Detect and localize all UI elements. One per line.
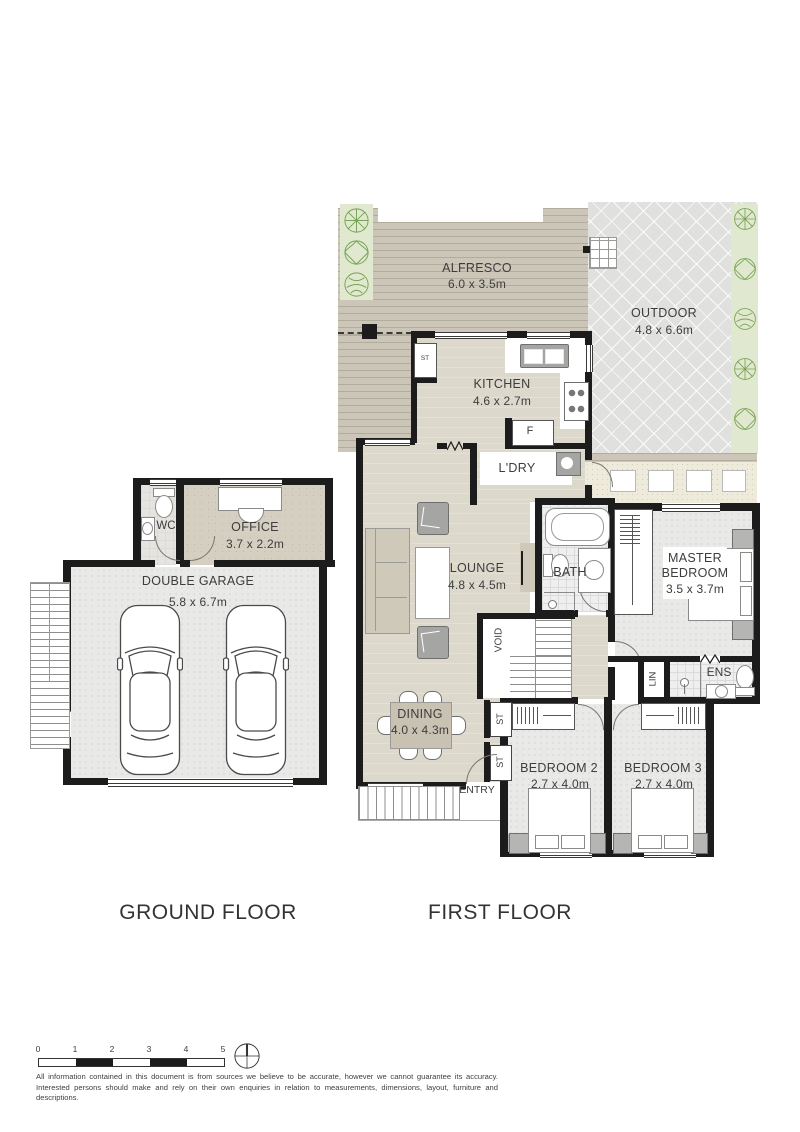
room-label-laundry: L'DRY <box>498 461 535 475</box>
room-label-pantry: ST <box>421 355 429 362</box>
kitchen-window <box>527 332 570 339</box>
room-label-fridge: F <box>527 425 534 437</box>
car-icon <box>117 603 183 777</box>
nightstand <box>732 529 754 549</box>
vanity-sink <box>584 560 604 580</box>
car-icon <box>223 603 289 777</box>
pillow <box>535 835 559 849</box>
hanging-rail-icon <box>620 515 640 547</box>
plant-icon <box>732 406 758 432</box>
scale-tick-3: 3 <box>147 1044 152 1054</box>
room-dims-office: 3.7 x 2.2m <box>226 537 284 551</box>
wall <box>437 443 447 449</box>
room-label-store-upper: ST <box>495 713 505 725</box>
sofa <box>365 528 410 634</box>
scale-tick-1: 1 <box>73 1044 78 1054</box>
wardrobe-rail <box>632 515 633 605</box>
garage-door <box>108 779 293 787</box>
room-label-linen: LIN <box>648 672 659 687</box>
laundry-tub-bowl <box>561 457 573 469</box>
paving-corner-post <box>583 246 590 253</box>
pillow <box>740 552 752 582</box>
wc-basin-bowl <box>142 522 153 535</box>
wall <box>720 656 757 662</box>
tv-screen <box>521 551 523 585</box>
sink-basin <box>545 349 564 364</box>
deck-sliding-door <box>435 332 507 339</box>
ground-floor-title: GROUND FLOOR <box>119 901 297 925</box>
bed-corner-block <box>613 833 633 854</box>
stair-divider <box>49 582 50 682</box>
room-label-alfresco: ALFRESCO <box>442 261 512 275</box>
ens-toilet-tank <box>735 687 755 696</box>
room-label-master-1: MASTER <box>668 551 722 565</box>
wall <box>411 381 417 443</box>
scale-segment <box>187 1059 224 1066</box>
coffee-table <box>415 547 450 619</box>
stepping-stone <box>610 470 636 492</box>
wall <box>664 656 670 700</box>
dining-chair <box>450 716 466 735</box>
exterior-stairs <box>30 582 70 749</box>
room-dims-bedroom3: 2.7 x 4.0m <box>635 777 693 791</box>
room-label-entry: ENTRY <box>459 784 494 796</box>
sink-basin <box>524 349 543 364</box>
room-dims-kitchen: 4.6 x 2.7m <box>473 394 531 408</box>
office-window <box>220 479 282 486</box>
deck-notch <box>378 206 543 222</box>
wall <box>535 498 615 505</box>
plant-icon <box>342 238 371 267</box>
wc-toilet-bowl <box>155 495 173 518</box>
lounge-window <box>365 439 410 446</box>
master-window <box>662 504 720 512</box>
ens-toilet-bowl <box>736 665 754 689</box>
nightstand <box>732 620 754 640</box>
sofa-cushion-line <box>375 597 407 598</box>
room-label-ensuite: ENS <box>707 665 732 679</box>
plant-icon <box>732 356 758 382</box>
wall <box>319 560 327 785</box>
robe-shelf-line <box>646 715 674 716</box>
scale-segment <box>150 1059 187 1066</box>
room-label-bedroom3: BEDROOM 3 <box>624 761 702 775</box>
room-label-office: OFFICE <box>231 520 279 534</box>
plant-icon <box>342 206 371 235</box>
cavity-slider-icon <box>700 654 720 664</box>
room-label-master-2: BEDROOM <box>662 566 729 580</box>
room-dims-master: 3.5 x 3.7m <box>666 582 724 596</box>
room-label-store-lower: ST <box>495 756 505 768</box>
pillow <box>664 835 688 849</box>
wall <box>63 560 155 567</box>
wall <box>507 331 527 338</box>
room-label-wc: WC <box>156 520 175 532</box>
ens-sink <box>715 685 728 698</box>
scale-segment <box>113 1059 150 1066</box>
bed-corner-block <box>589 833 606 854</box>
wall <box>325 478 333 567</box>
wall <box>470 443 477 505</box>
sofa-cushion-line <box>375 562 407 563</box>
scale-segment <box>39 1059 76 1066</box>
robe-shelf-line <box>543 715 571 716</box>
stair-treads-upper <box>536 620 571 656</box>
shower-glass <box>700 662 701 697</box>
wall <box>214 560 335 567</box>
plant-icon <box>732 306 758 332</box>
scale-tick-2: 2 <box>110 1044 115 1054</box>
north-compass-icon <box>233 1042 261 1070</box>
wall <box>535 498 542 617</box>
room-label-lounge: LOUNGE <box>450 561 505 575</box>
wall <box>180 560 190 567</box>
hanging-rail-icon <box>678 707 702 724</box>
cavity-slider-icon <box>447 441 463 451</box>
wall <box>133 478 141 567</box>
deck-left-column <box>338 335 415 452</box>
scale-segment <box>76 1059 113 1066</box>
room-label-kitchen: KITCHEN <box>474 377 531 391</box>
deck-strip-right <box>575 453 757 462</box>
entry-stairs <box>358 786 460 820</box>
room-dims-garage: 5.8 x 6.7m <box>169 595 227 609</box>
armchair-line <box>421 507 442 528</box>
room-label-bath: BATH <box>553 565 587 579</box>
pillow <box>638 835 662 849</box>
wall <box>608 667 615 700</box>
bathtub-basin <box>551 513 604 541</box>
plant-icon <box>732 256 758 282</box>
room-label-dining: DINING <box>397 707 443 721</box>
armchair-line <box>421 631 442 652</box>
room-dims-alfresco: 6.0 x 3.5m <box>448 277 506 291</box>
first-floor-title: FIRST FLOOR <box>428 901 572 925</box>
porch-edge-line <box>358 820 500 821</box>
room-dims-lounge: 4.8 x 4.5m <box>448 578 506 592</box>
scale-tick-4: 4 <box>184 1044 189 1054</box>
stepping-stone <box>722 470 746 492</box>
stepping-stone <box>686 470 712 492</box>
wall <box>293 778 327 785</box>
pillow <box>740 586 752 616</box>
room-dims-outdoor: 4.8 x 6.6m <box>635 323 693 337</box>
scale-tick-0: 0 <box>36 1044 41 1054</box>
bed-corner-block <box>509 833 530 854</box>
scale-bar <box>38 1058 225 1067</box>
kitchen-side-window <box>586 345 593 372</box>
shower-arm <box>684 684 685 694</box>
room-label-void: VOID <box>494 628 505 652</box>
wall <box>63 778 108 785</box>
plant-icon <box>732 206 758 232</box>
deck-post <box>362 324 377 339</box>
stair-divider <box>535 619 536 698</box>
outdoor-steps <box>589 237 617 269</box>
sofa-cushion-line <box>375 529 376 631</box>
stair-treads-lower <box>510 656 571 698</box>
room-dims-bedroom2: 2.7 x 4.0m <box>531 777 589 791</box>
scale-tick-5: 5 <box>221 1044 226 1054</box>
disclaimer-text: All information contained in this docume… <box>36 1072 498 1104</box>
wall <box>585 331 592 345</box>
stove-cooktop <box>564 382 589 421</box>
room-label-bedroom2: BEDROOM 2 <box>520 761 598 775</box>
pillow <box>561 835 585 849</box>
room-label-outdoor: OUTDOOR <box>631 306 697 320</box>
plant-icon <box>342 270 371 299</box>
wc-window <box>150 479 176 486</box>
wall <box>356 438 363 788</box>
room-dims-dining: 4.0 x 4.3m <box>391 723 449 737</box>
hanging-rail-icon <box>517 707 541 724</box>
stepping-stone <box>648 470 674 492</box>
shower-head-icon <box>548 600 557 609</box>
room-label-garage: DOUBLE GARAGE <box>142 574 254 588</box>
floorplan-page: ALFRESCO 6.0 x 3.5m OUTDOOR 4.8 x 6.6m K… <box>0 0 800 1132</box>
